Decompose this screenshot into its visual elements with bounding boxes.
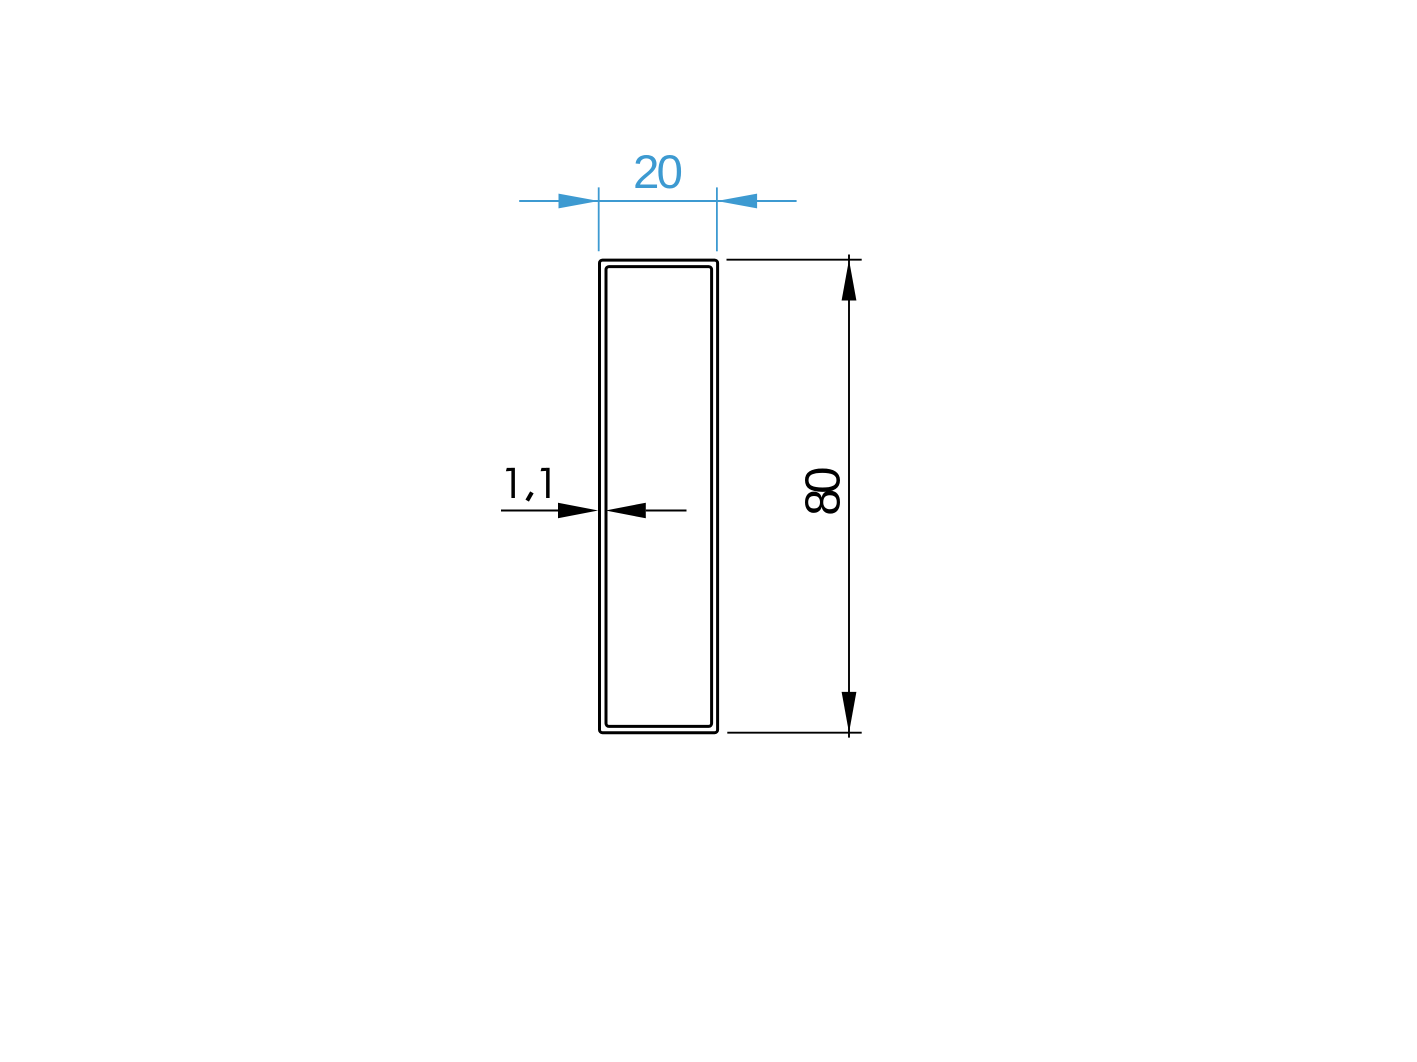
- svg-text:20: 20: [633, 146, 683, 199]
- svg-text:80: 80: [796, 467, 850, 516]
